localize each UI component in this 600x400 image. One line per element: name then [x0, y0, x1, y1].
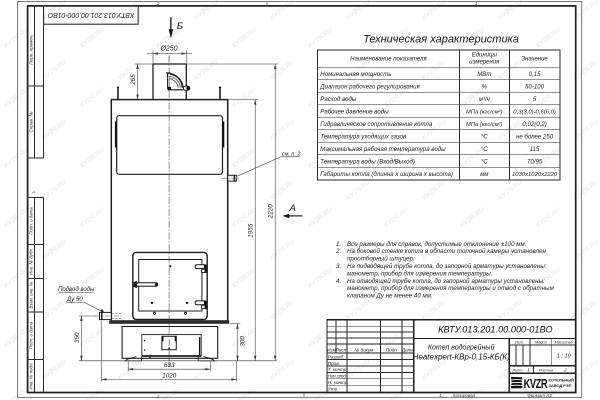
svg-text:Масштаб: Масштаб [555, 339, 574, 344]
svg-text:Перв. примен.: Перв. примен. [28, 34, 33, 65]
svg-text:№ докум: № докум [354, 347, 374, 352]
svg-text:°С: °С [481, 146, 488, 153]
svg-text:2: 2 [563, 368, 567, 373]
svg-text:1020: 1020 [162, 372, 177, 379]
svg-text:50-100: 50-100 [525, 83, 545, 90]
svg-text:0,15: 0,15 [529, 71, 541, 78]
svg-text:КВТУ.013.201.00.000-01ВО: КВТУ.013.201.00.000-01ВО [438, 324, 552, 334]
svg-text:манометр, прибор для измерения: манометр, прибор для измерения температу… [347, 285, 555, 292]
svg-text:Справ. №: Справ. № [28, 112, 33, 133]
svg-text:Формат А3: Формат А3 [527, 393, 552, 398]
svg-text:Расход воды: Расход воды [320, 96, 357, 103]
svg-text:Ду 50: Ду 50 [66, 297, 83, 303]
svg-text:Разраб.: Разраб. [328, 354, 345, 359]
svg-text:ЗАВОД РЭП: ЗАВОД РЭП [549, 383, 572, 388]
svg-text:не более 250: не более 250 [516, 133, 554, 140]
svg-text:м³/ч: м³/ч [479, 96, 491, 103]
svg-text:Диапазон рабочего регулировани: Диапазон рабочего регулирования [319, 83, 420, 90]
svg-text:Гидравлическое сопротивление к: Гидравлическое сопротивление котла [320, 121, 433, 128]
svg-text:А: А [289, 203, 296, 214]
svg-text:Утв.: Утв. [328, 387, 338, 392]
svg-text:Лист: Лист [511, 368, 523, 373]
svg-text:Взам. инв. №: Взам. инв. № [28, 281, 33, 308]
svg-text:проотборный штуцер.: проотборный штуцер. [347, 256, 415, 263]
svg-text:Листов: Листов [538, 368, 553, 373]
svg-text:На подводящей трубе котла, до: На подводящей трубе котла, до запорной а… [347, 263, 547, 270]
svg-text:Подвод воды: Подвод воды [58, 287, 95, 293]
svg-text:Все размеры для справок, допус: Все размеры для справок, допустимые откл… [347, 241, 527, 248]
svg-text:Н. контр.: Н. контр. [328, 380, 349, 385]
svg-text:Максимальная рабочая температу: Максимальная рабочая температура воды [320, 146, 446, 153]
svg-text:°С: °С [481, 133, 488, 140]
svg-text:МВт: МВт [477, 71, 491, 78]
svg-text:%: % [482, 83, 488, 90]
svg-text:А: А [31, 190, 35, 195]
svg-text:Значение: Значение [521, 57, 548, 63]
svg-text:КВТУ.013.201.00.000-01ВО: КВТУ.013.201.00.000-01ВО [48, 11, 134, 20]
svg-text:манометр, прибор для измерения: манометр, прибор для измерения температу… [347, 270, 492, 277]
svg-text:КОТЕЛЬНЫЙ: КОТЕЛЬНЫЙ [549, 377, 575, 382]
svg-text:2: 2 [156, 394, 160, 399]
svg-text:Лит.: Лит. [514, 339, 524, 344]
svg-text:Лист: Лист [335, 347, 348, 352]
svg-text:Ø250: Ø250 [159, 46, 177, 53]
svg-text:Инв. № дубл.: Инв. № дубл. [28, 248, 33, 275]
svg-text:Т. контр.: Т. контр. [328, 367, 348, 372]
svg-text:2: 2 [156, 1, 160, 6]
svg-text:Нач.отд: Нач.отд [328, 374, 347, 379]
svg-text:Heatexpert-КВр-0,15-КБ(К): Heatexpert-КВр-0,15-КБ(К) [413, 352, 510, 361]
svg-text:0,3(3,0)-0,6(6,0): 0,3(3,0)-0,6(6,0) [513, 109, 556, 115]
svg-text:На боковой стенке котла в обла: На боковой стенке котла в области топочн… [347, 248, 546, 255]
svg-text:1.: 1. [336, 241, 341, 248]
svg-text:Котел водогрейный: Котел водогрейный [428, 343, 495, 351]
svg-text:Температура воды (Вход/Выход): Температура воды (Вход/Выход) [320, 158, 415, 165]
svg-text:265: 265 [130, 74, 137, 86]
svg-text:Наименование показателя: Наименование показателя [350, 57, 427, 63]
svg-text:На отводящей трубе котла, до з: На отводящей трубе котла, до запорной ар… [347, 278, 545, 285]
svg-text:1: 1 [527, 368, 530, 373]
svg-text:4.: 4. [336, 278, 341, 285]
svg-text:0,02(0,2): 0,02(0,2) [522, 121, 546, 128]
svg-text:115: 115 [530, 146, 540, 153]
svg-text:Номинальная мощность: Номинальная мощность [320, 71, 391, 78]
svg-text:70/95: 70/95 [527, 158, 543, 165]
svg-text:1955: 1955 [247, 223, 254, 238]
svg-text:Подп: Подп [386, 347, 397, 352]
svg-text:Пров.: Пров. [328, 361, 340, 366]
svg-text:измерения: измерения [469, 60, 500, 66]
svg-text:клапаном Ду не менее 40 мм.: клапаном Ду не менее 40 мм. [347, 293, 433, 300]
svg-text:350: 350 [74, 332, 81, 343]
svg-text:3.: 3. [336, 263, 341, 270]
svg-text:300: 300 [240, 336, 247, 347]
svg-text:Единицы: Единицы [472, 53, 498, 59]
svg-text:мм: мм [480, 171, 489, 178]
svg-text:KVZR: KVZR [524, 377, 548, 391]
svg-text:Копировал: Копировал [453, 393, 476, 398]
svg-text:МПа (кгс/см²): МПа (кгс/см²) [466, 122, 503, 128]
svg-text:Подп. и дата: Подп. и дата [28, 321, 33, 349]
svg-text:МПа (кгс/см²): МПа (кгс/см²) [466, 109, 503, 115]
svg-text:см. п. 2: см. п. 2 [282, 151, 300, 157]
svg-text:Техническая характеристика: Техническая характеристика [363, 33, 519, 45]
svg-text:Подп. и дата: Подп. и дата [28, 207, 33, 235]
svg-text:Инв. № подл.: Инв. № подл. [28, 362, 33, 389]
svg-text:1 : 10: 1 : 10 [557, 354, 572, 360]
svg-text:Температура уходящих газов: Температура уходящих газов [320, 133, 406, 140]
svg-text:633: 633 [164, 362, 175, 369]
svg-text:Б: Б [177, 21, 183, 32]
svg-text:2220: 2220 [267, 204, 274, 220]
svg-text:Рабочее давление воды: Рабочее давление воды [320, 108, 389, 115]
svg-text:°С: °С [481, 158, 488, 165]
svg-text:Масса: Масса [535, 339, 547, 344]
svg-text:1030х1020х2220: 1030х1020х2220 [512, 172, 558, 178]
svg-text:2.: 2. [335, 248, 341, 255]
svg-text:1: 1 [475, 1, 478, 6]
svg-text:Габариты котла (длинна х ширин: Габариты котла (длинна х ширина х высота… [320, 171, 453, 178]
